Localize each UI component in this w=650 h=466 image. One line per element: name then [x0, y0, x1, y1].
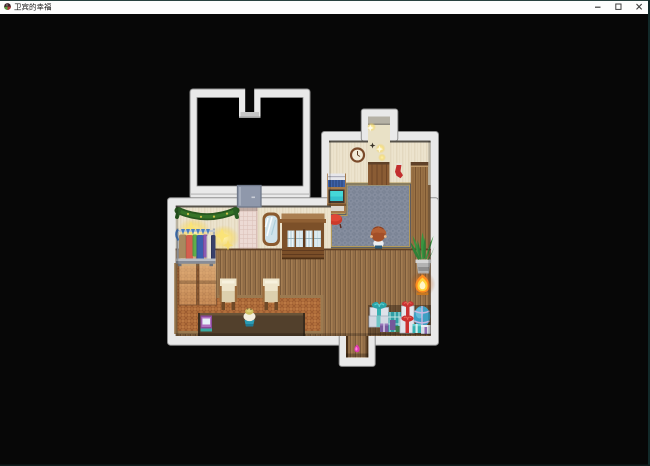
- svg-text:卫宾的幸福: 卫宾的幸福: [14, 2, 52, 12]
